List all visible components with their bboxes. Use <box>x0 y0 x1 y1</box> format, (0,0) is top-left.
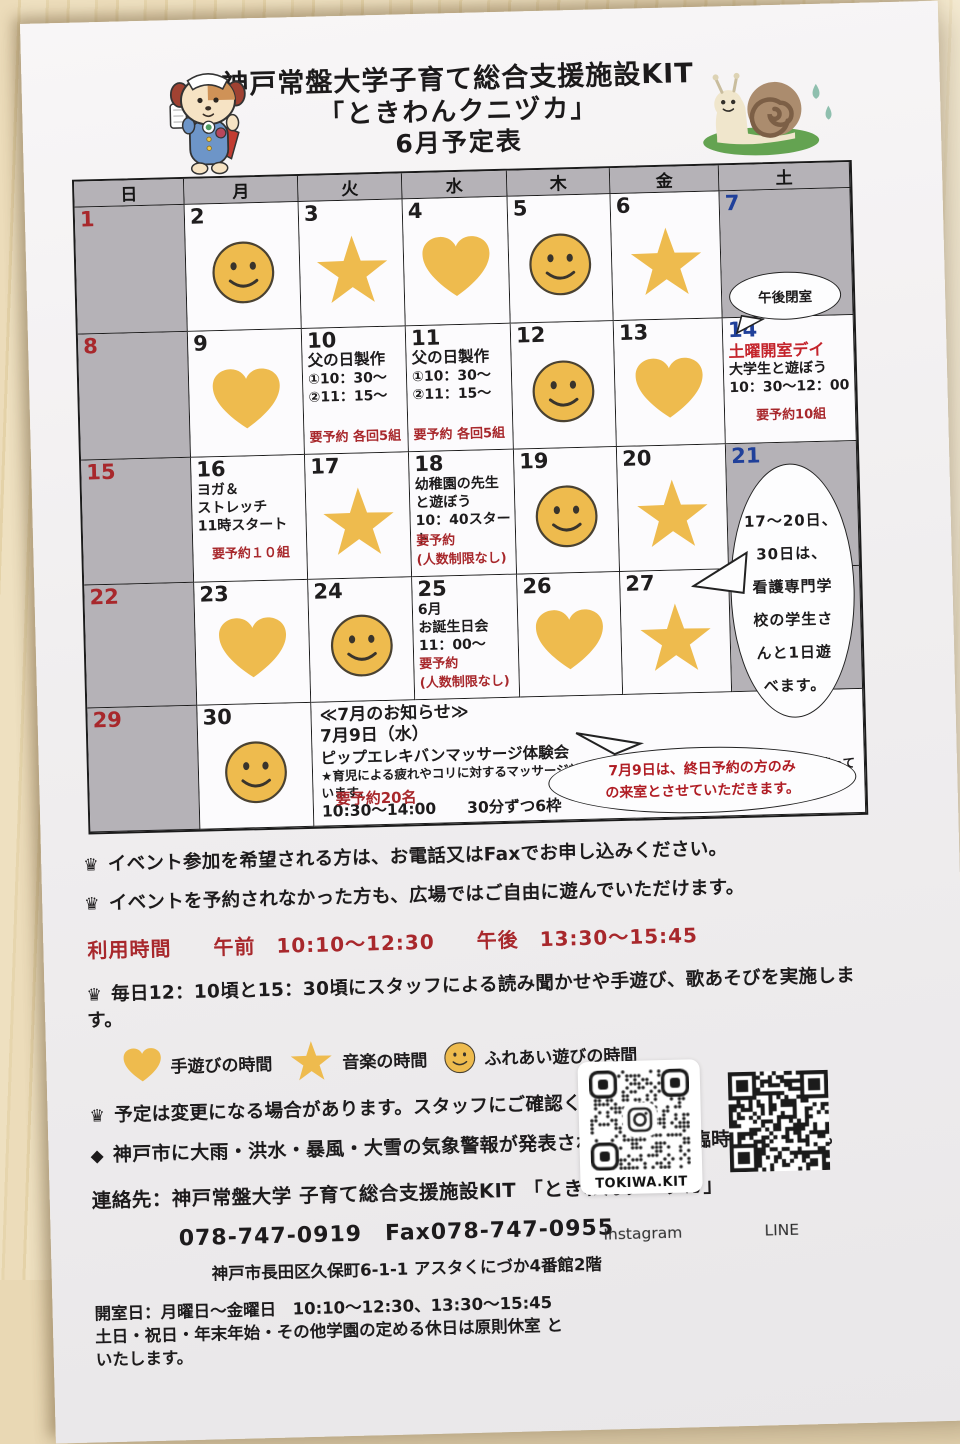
heart-icon <box>122 1047 163 1084</box>
smiley-icon <box>328 612 396 680</box>
instagram-caption: TOKIWA.KIT <box>580 1174 702 1192</box>
day-number: 10 <box>302 326 406 353</box>
calendar-table: 午後閉室 17～20日、30日は、看護専門学校の学生さんと1日遊べます。 日月火… <box>72 160 868 835</box>
activity-icon-wrap <box>309 599 414 692</box>
day-cell-10: 10父の日製作①10：30～②11：15～要予約 各回5組 <box>302 326 409 455</box>
day-cell-26: 26 <box>517 572 623 698</box>
activity-icon-wrap <box>518 594 622 687</box>
day-cell-8: 8 <box>78 332 191 461</box>
smiley-icon <box>209 239 277 307</box>
note-line-2: ♛イベントを予約されなかった方も、広場ではご自由に遊んでいただけます。 <box>84 870 876 916</box>
day-number: 16 <box>191 455 305 482</box>
bubble-tail <box>735 314 765 335</box>
activity-icon-wrap <box>614 340 724 436</box>
bubble-tail <box>574 729 645 757</box>
note-text: 毎日12：10頃と15：30頃にスタッフによる読み聞かせや手遊び、歌あそびを実施… <box>87 965 855 1031</box>
note-line: (人数制限なし) <box>416 550 512 571</box>
note-line: 要予約 <box>416 531 512 552</box>
star-icon <box>626 225 706 299</box>
crown-icon: ♛ <box>89 1106 105 1126</box>
smiley-icon <box>222 738 290 806</box>
note-text: イベントを予約されなかった方も、広場ではご自由に遊んでいただけます。 <box>109 877 745 914</box>
heart-icon <box>216 615 290 681</box>
star-icon <box>318 485 398 559</box>
weekday-header-0: 日 <box>74 179 185 208</box>
activity-icon-wrap <box>514 469 618 564</box>
weekday-header-5: 金 <box>610 165 720 194</box>
daily-program-note: ♛毎日12：10頃と15：30頃にスタッフによる読み聞かせや手遊び、歌あそびを実… <box>86 961 879 1033</box>
weekday-header-3: 水 <box>402 171 508 200</box>
event-line: 11時スタート <box>198 515 304 536</box>
smiley-icon <box>530 357 598 425</box>
day-number: 11 <box>406 324 511 351</box>
heart-icon <box>633 355 707 421</box>
note-line: 要予約 各回5組 <box>309 428 404 449</box>
activity-icon-wrap <box>611 213 721 310</box>
title-block: 神戸常盤大学子育て総合支援施設KIT 「ときわんクニヅカ」 6月予定表 <box>69 31 848 180</box>
day-cell-5: 5 <box>508 194 614 324</box>
activity-icon-wrap <box>621 591 731 684</box>
students-bubble-line: 看護専門学 <box>731 569 854 605</box>
event-line: ①10：30～ <box>308 368 404 389</box>
crown-icon: ♛ <box>86 985 102 1005</box>
note-line: 要予約 各回5組 <box>413 425 509 446</box>
instagram-qr-code <box>589 1068 691 1170</box>
line-qr-code <box>728 1070 830 1172</box>
day-cell-12: 12 <box>511 321 617 450</box>
opening-days-block: 開室日：月曜日～金曜日 10:10～12:30、13:30～15:45 土日・祝… <box>94 1290 576 1371</box>
crown-icon: ♛ <box>83 855 99 875</box>
activity-icon-wrap <box>198 725 313 819</box>
day-cell-1: 1 <box>75 205 188 335</box>
event-text: ヨガ＆ストレッチ11時スタート <box>192 479 306 536</box>
smiley-icon <box>533 483 601 551</box>
day-cell-22: 22 <box>84 583 197 709</box>
day-cell-15: 15 <box>81 458 194 586</box>
heart-icon <box>209 366 283 432</box>
legend-label: 音楽の時間 <box>342 1046 428 1073</box>
activity-icon-wrap <box>185 224 300 321</box>
note-line: (人数制限なし) <box>420 673 516 694</box>
day-number: 8 <box>78 332 188 359</box>
day-cell-13: 13 <box>614 318 726 447</box>
schedule-paper: 神戸常盤大学子育て総合支援施設KIT 「ときわんクニヅカ」 6月予定表 午後閉室 <box>20 1 960 1444</box>
legend-item-heart: 手遊びの時間 <box>122 1044 273 1084</box>
day-cell-30: 30 <box>197 703 314 830</box>
activity-icon-wrap <box>306 474 411 569</box>
heart-icon <box>419 234 493 300</box>
event-line: ②11：15～ <box>412 384 509 405</box>
event-text: 6月お誕生日会11：00～ <box>413 599 518 656</box>
dog-mascot-illustration <box>157 66 260 178</box>
event-line: 11：00～ <box>419 635 516 656</box>
day-cell-2: 2 <box>185 202 302 332</box>
event-text: 土曜開室デイ大学生と遊ぼう10：30～12：00 <box>723 339 854 398</box>
note-line-1: ♛イベント参加を希望される方は、お電話又はFaxでお申し込みください。 <box>83 831 875 877</box>
reservation-note: 要予約10組 <box>730 405 852 427</box>
note-line: 要予約10組 <box>730 405 852 427</box>
day-number: 25 <box>412 575 517 602</box>
day-cell-19: 19 <box>514 447 620 575</box>
note-text: 予定は変更になる場合があります。スタッフにご確認ください。 <box>114 1091 657 1126</box>
activity-icon-wrap <box>188 351 303 447</box>
opening-hours-line: 利用時間 午前 10:10～12:30 午後 13:30～15:45 <box>87 915 877 964</box>
weekday-header-1: 月 <box>184 176 299 205</box>
weekday-header-4: 木 <box>507 168 611 197</box>
event-text: 父の日製作①10：30～②11：15～ <box>302 350 406 407</box>
reservation-note: 要予約 各回5組 <box>309 428 404 449</box>
day-cell-23: 23 <box>194 580 311 706</box>
day-cell-16: 16ヨガ＆ストレッチ11時スタート要予約１０組 <box>191 455 308 583</box>
bubble-tail <box>691 550 750 597</box>
event-text: 父の日製作①10：30～②11：15～ <box>406 348 511 405</box>
legend-label: 手遊びの時間 <box>170 1049 273 1077</box>
line-label: LINE <box>732 1220 832 1241</box>
event-line: ②11：15～ <box>308 386 404 407</box>
activity-icon-wrap <box>511 343 615 439</box>
activity-icon-wrap <box>403 219 509 316</box>
weekday-header-6: 土 <box>719 162 851 191</box>
day-cell-25: 256月お誕生日会11：00～要予約(人数制限なし) <box>412 575 520 701</box>
day-cell-17: 17 <box>305 452 412 580</box>
pm-closed-text: 午後閉室 <box>758 285 812 306</box>
crown-icon: ♛ <box>84 894 100 914</box>
legend-item-star: 音楽の時間 <box>288 1037 428 1083</box>
day-number: 22 <box>84 583 194 610</box>
reservation-note: 要予約(人数制限なし) <box>416 531 513 571</box>
activity-icon-wrap <box>617 466 727 561</box>
reservation-note: 要予約１０組 <box>198 544 303 565</box>
note-line: 要予約 <box>419 654 515 675</box>
day-number: 15 <box>81 458 191 485</box>
event-line: 幼稚園の先生 <box>415 474 512 495</box>
star-icon <box>312 233 392 307</box>
reservation-note: 要予約 各回5組 <box>413 425 509 446</box>
day-cell-6: 6 <box>610 191 722 321</box>
day-cell-18: 18幼稚園の先生と遊ぼう10：40スタート要予約(人数制限なし) <box>409 450 517 578</box>
day-number: 29 <box>87 706 197 733</box>
star-icon <box>288 1039 335 1082</box>
july-bubble-line: の来室とさせていただきます。 <box>605 778 800 805</box>
event-line: 10：30～12：00 <box>729 376 852 397</box>
weekday-header-2: 火 <box>298 173 403 202</box>
activity-icon-wrap <box>299 221 404 318</box>
day-cell-3: 3 <box>299 199 406 329</box>
students-bubble-line: 17～20日、 <box>729 503 852 539</box>
day-cell-29: 29 <box>87 706 200 833</box>
students-bubble-line: べます。 <box>734 668 857 704</box>
smiley-icon <box>526 231 594 299</box>
instagram-qr-card: TOKIWA.KIT <box>577 1059 702 1195</box>
activity-icon-wrap <box>195 602 310 695</box>
day-cell-9: 9 <box>188 329 305 458</box>
qr-code-area: TOKIWA.KIT Instagram LINE <box>577 1055 852 1262</box>
note-text: イベント参加を希望される方は、お電話又はFaxでお申し込みください。 <box>108 838 728 875</box>
day-number: 18 <box>409 450 514 477</box>
snail-illustration <box>687 65 839 161</box>
day-number: 7 <box>719 188 850 215</box>
note-line: 要予約１０組 <box>198 544 303 565</box>
star-icon <box>633 477 713 551</box>
day-cell-4: 4 <box>403 197 511 327</box>
smiley-icon <box>443 1040 477 1074</box>
july-reservation-note: 要予約20名 <box>335 786 416 809</box>
day-cell-11: 11父の日製作①10：30～②11：15～要予約 各回5組 <box>406 324 514 453</box>
students-bubble-line: んと1日遊 <box>733 635 856 671</box>
students-bubble-line: 校の学生さ <box>732 602 855 638</box>
diamond-icon: ◆ <box>90 1146 104 1166</box>
instagram-label: Instagram <box>582 1223 704 1244</box>
day-number: 1 <box>75 205 185 232</box>
day-cell-24: 24 <box>308 577 415 703</box>
reservation-note: 要予約(人数制限なし) <box>419 654 516 694</box>
activity-icon-wrap <box>508 216 612 313</box>
heart-icon <box>533 607 607 673</box>
star-icon <box>636 601 716 675</box>
